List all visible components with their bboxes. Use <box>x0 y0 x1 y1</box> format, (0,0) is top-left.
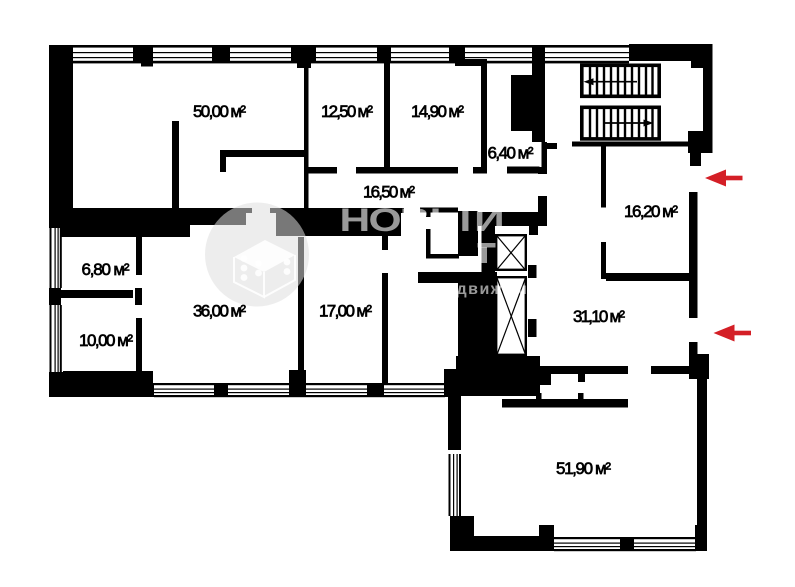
svg-text:6,40 м²: 6,40 м² <box>488 144 534 163</box>
svg-text:17,00 м²: 17,00 м² <box>319 302 372 321</box>
svg-text:12,50 м²: 12,50 м² <box>321 102 373 121</box>
svg-text:31,10 м²: 31,10 м² <box>573 307 625 326</box>
svg-text:10,00 м²: 10,00 м² <box>79 331 133 350</box>
svg-text:6,80 м²: 6,80 м² <box>82 260 130 279</box>
svg-text:36,00 м²: 36,00 м² <box>193 302 246 321</box>
svg-text:50,00 м²: 50,00 м² <box>193 102 246 121</box>
svg-text:НОВЫЙ: НОВЫЙ <box>340 202 505 238</box>
svg-text:16,20 м²: 16,20 м² <box>624 202 678 221</box>
svg-text:51,90 м²: 51,90 м² <box>556 459 611 478</box>
svg-text:14,90 м²: 14,90 м² <box>411 102 464 121</box>
svg-text:недвижимость: недвижимость <box>435 281 570 298</box>
svg-text:16,50 м²: 16,50 м² <box>363 183 415 202</box>
